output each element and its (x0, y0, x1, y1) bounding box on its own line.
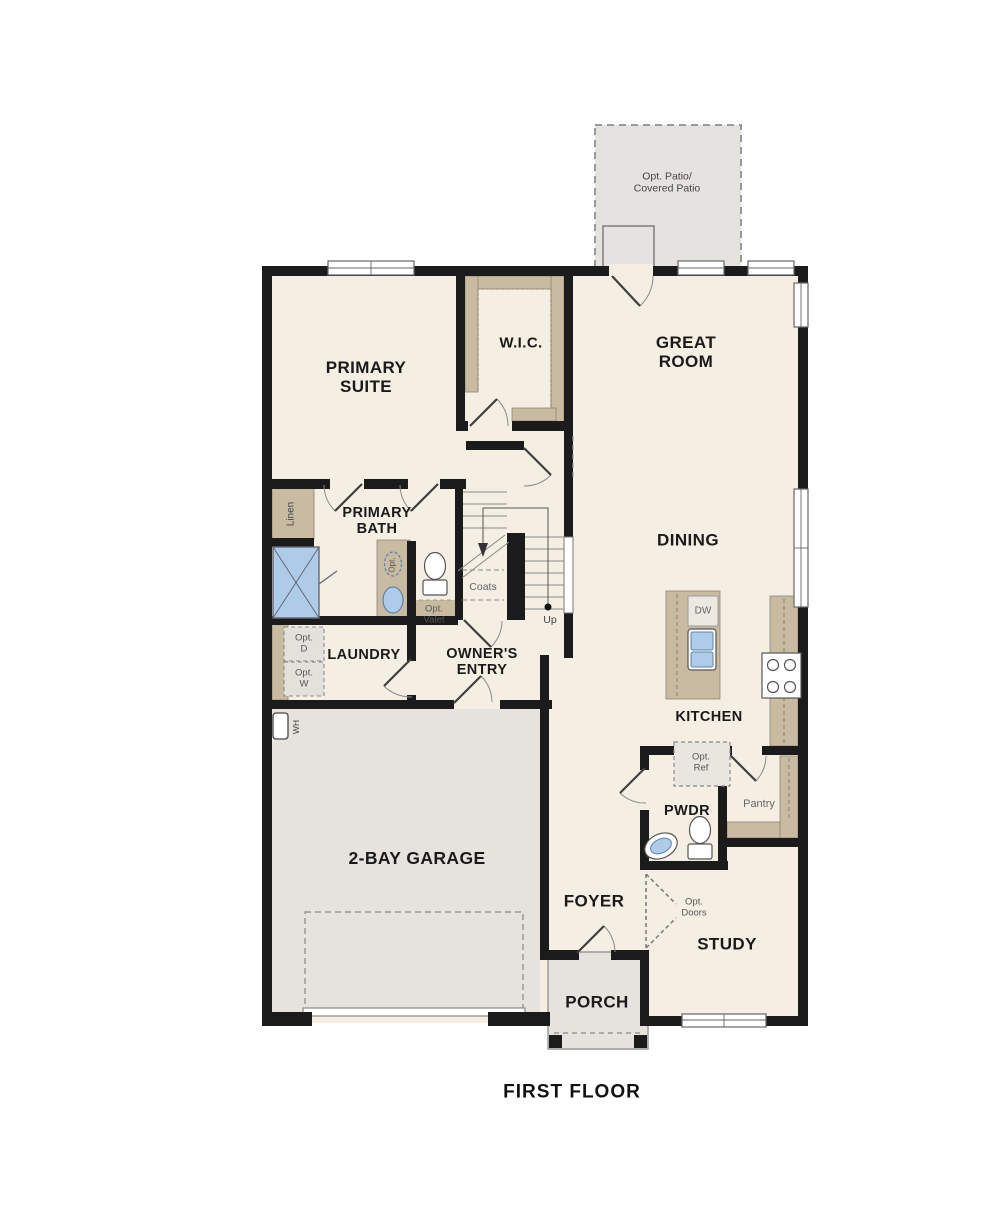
opt-dryer-label: Opt. D (295, 633, 313, 654)
powder-toilet (688, 817, 712, 860)
room-label-kitchen: KITCHEN (675, 709, 742, 725)
room-label-dining: DINING (657, 530, 719, 549)
opt-washer-label: Opt. W (295, 668, 313, 689)
page-title: FIRST FLOOR (503, 1081, 641, 1102)
patio-door-opening (609, 264, 653, 277)
wic-shelf-right (551, 276, 564, 422)
water-heater-box (273, 713, 288, 739)
room-label-porch: PORCH (565, 992, 628, 1011)
pantry-shelf-bottom (727, 822, 780, 838)
room-label-laundry: LAUNDRY (327, 647, 400, 663)
patio-optional (595, 125, 741, 272)
wic-shelf-bottom (512, 408, 556, 421)
room-label-pantry: Pantry (743, 798, 775, 810)
wic-shelf-left (465, 276, 478, 392)
room-label-primary-suite: PRIMARY SUITE (326, 358, 407, 396)
porch-post (549, 1035, 562, 1048)
room-label-primary-bath: PRIMARY BATH (342, 505, 411, 537)
patio-label: Opt. Patio/ Covered Patio (634, 171, 701, 195)
room-label-owners-entry: OWNER'S ENTRY (446, 646, 518, 678)
opt-doors-label: Opt. Doors (681, 897, 706, 918)
room-label-wic: W.I.C. (499, 336, 542, 353)
island-sink (688, 629, 716, 670)
stair-rail (564, 537, 573, 613)
wic-shelf-top (465, 276, 564, 289)
opt-sink-label: Opt. (389, 557, 398, 572)
cooktop (762, 653, 801, 698)
room-label-great-room: GREAT ROOM (656, 333, 716, 371)
floor-plan-page: Opt. Patio/ Covered Patio PRIMARY SUITE … (0, 0, 1000, 1216)
floor-plan-graphic (0, 0, 1000, 1216)
stair-start-dot (545, 604, 552, 611)
room-label-garage: 2-BAY GARAGE (348, 849, 485, 869)
valet-label: Opt. Valet (424, 604, 445, 625)
opt-ref-label: Opt. Ref (692, 752, 710, 773)
room-label-pwdr: PWDR (664, 803, 710, 819)
porch-post (634, 1035, 647, 1048)
dishwasher-label: DW (695, 605, 712, 616)
water-heater-label: WH (292, 720, 302, 734)
room-label-study: STUDY (697, 934, 757, 953)
up-label: Up (543, 615, 556, 627)
linen-label: Linen (285, 502, 296, 526)
vanity-sink (383, 587, 403, 613)
bath-toilet (423, 553, 447, 596)
room-label-foyer: FOYER (564, 891, 625, 910)
coats-label: Coats (469, 582, 496, 594)
